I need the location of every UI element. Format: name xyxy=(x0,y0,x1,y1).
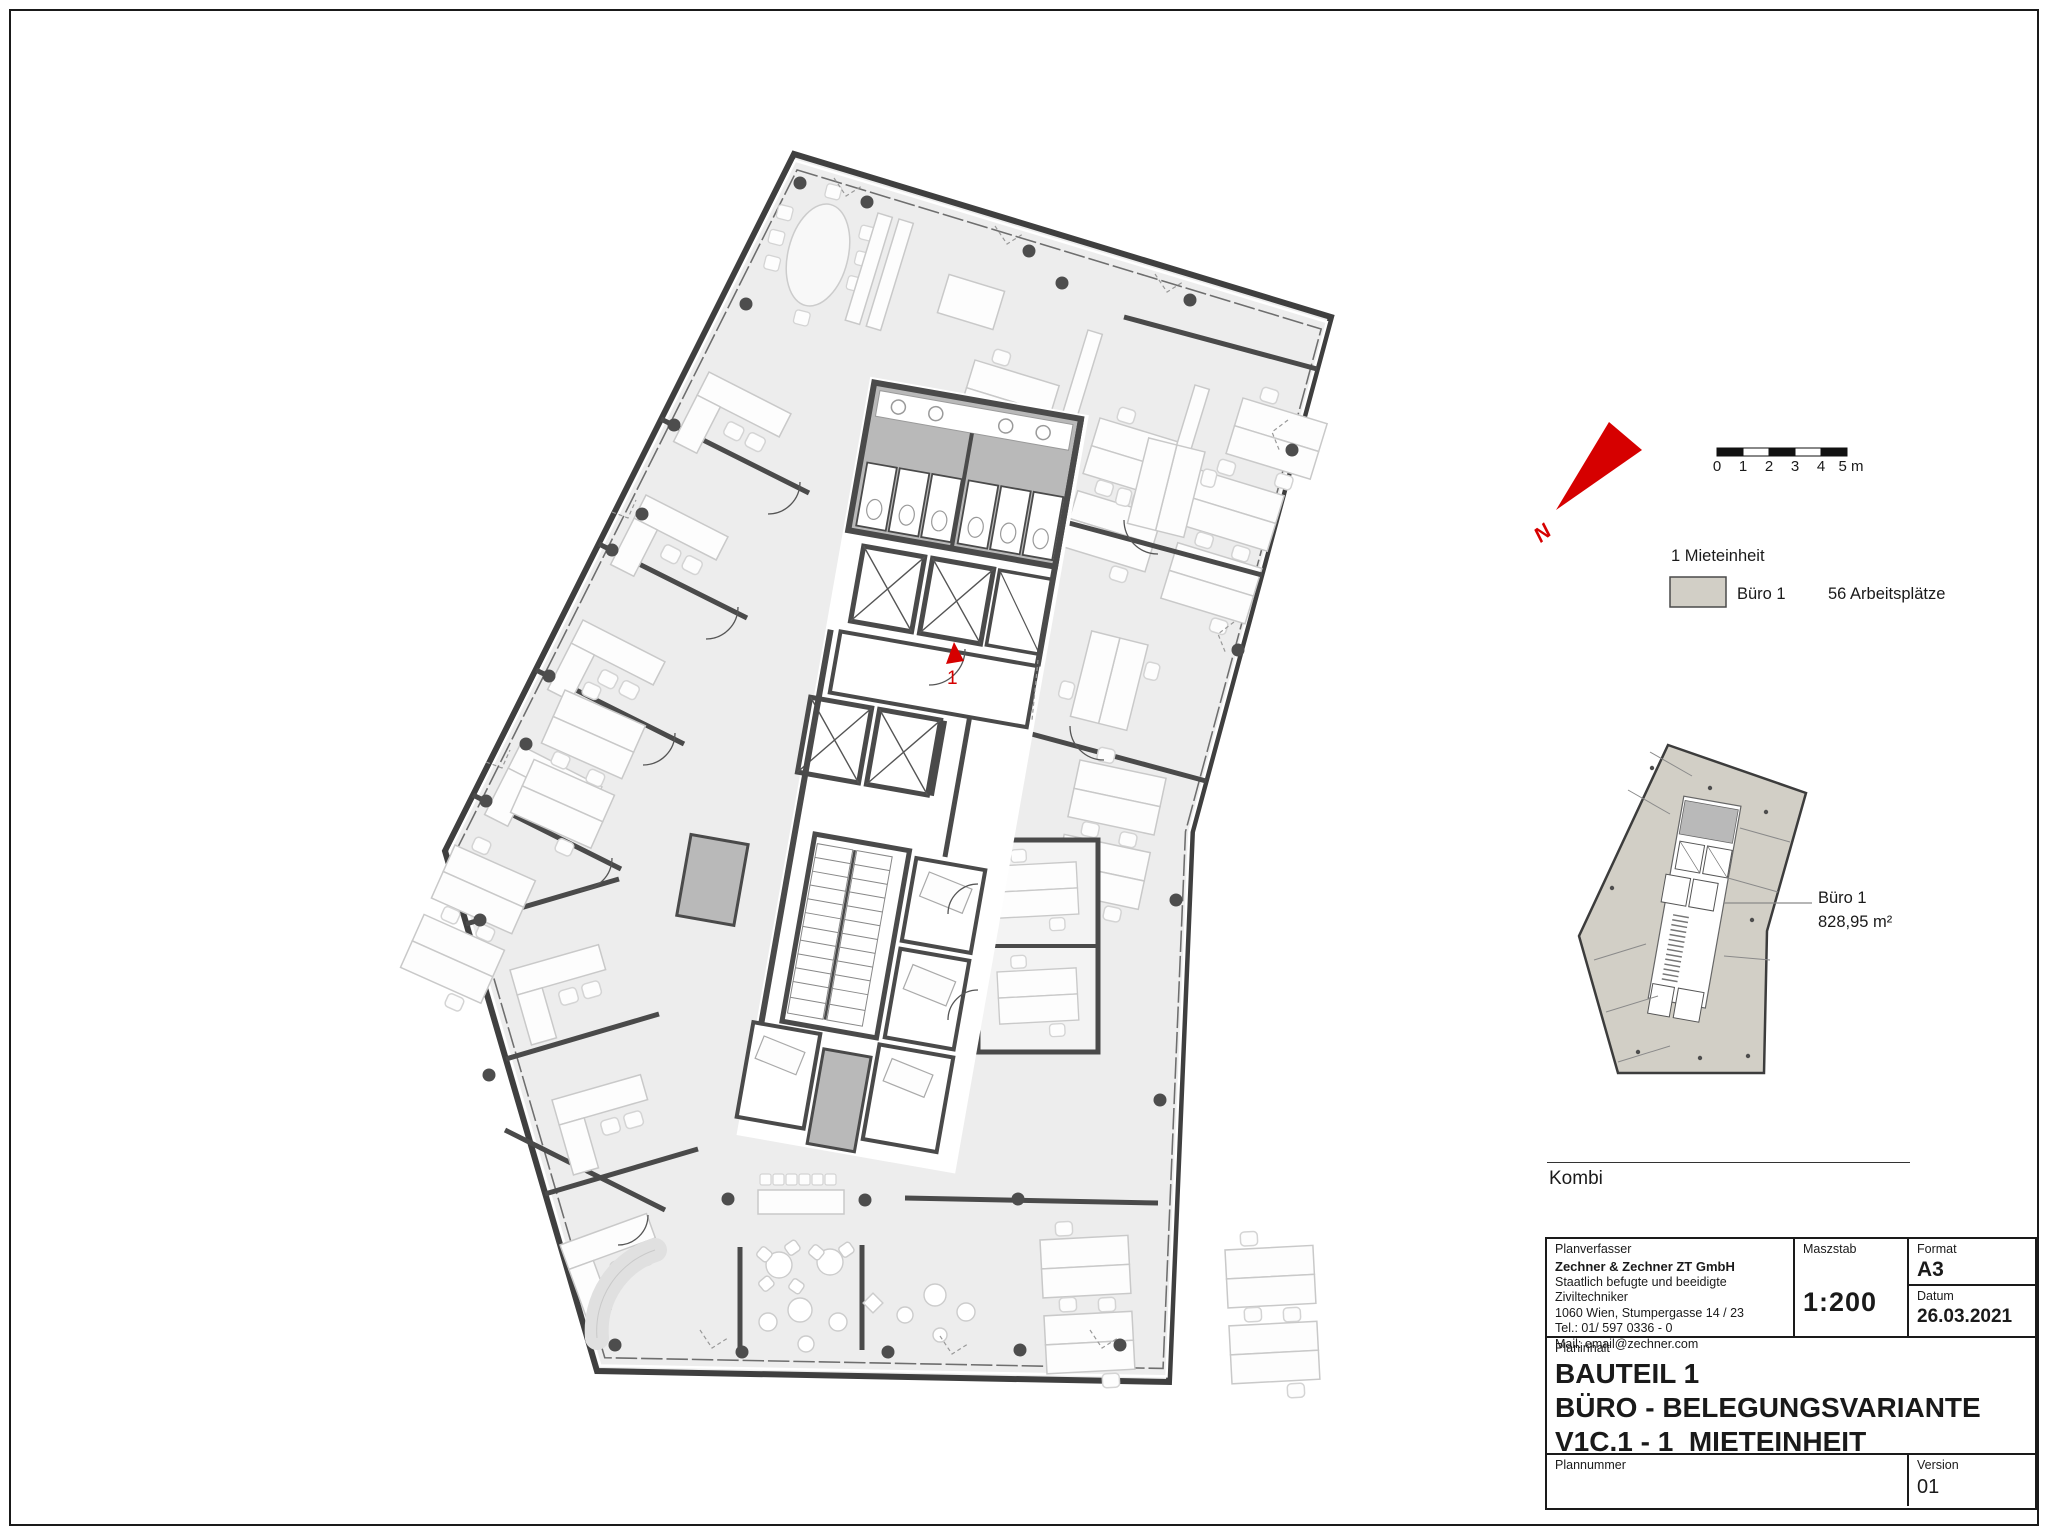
scale-tick-0: 0 xyxy=(1713,458,1721,475)
format-value: A3 xyxy=(1917,1258,2027,1282)
plan-title-line1: BAUTEIL 1 xyxy=(1555,1358,2027,1390)
legend-unit-label: Büro 1 xyxy=(1737,585,1786,603)
format-label: Format xyxy=(1917,1242,2027,1257)
north-arrow-icon xyxy=(1556,422,1642,510)
wc-area xyxy=(848,383,1081,567)
maszstab-label: Maszstab xyxy=(1803,1242,1899,1257)
company-phone: Tel.: 01/ 597 0336 - 0 xyxy=(1555,1321,1785,1337)
scale-tick-4: 4 xyxy=(1817,458,1825,475)
plannummer-cell: Plannummer xyxy=(1547,1455,1909,1506)
scale-bar: 0 1 2 3 4 5 m xyxy=(1713,448,1864,475)
section-label: Kombi xyxy=(1549,1168,1603,1190)
company-name: Zechner & Zechner ZT GmbH xyxy=(1555,1259,1785,1275)
maszstab-value: 1:200 xyxy=(1803,1287,1899,1318)
overview-room-label: Büro 1 xyxy=(1818,889,1867,907)
legend: 1 Mieteinheit Büro 1 56 Arbeitsplätze xyxy=(1670,547,1945,607)
scale-tick-2: 2 xyxy=(1765,458,1773,475)
scale-tick-5: 5 m xyxy=(1838,458,1863,475)
plan-sheet: 1 N 0 1 2 3 4 5 m xyxy=(0,0,2048,1535)
company-subtitle: Staatlich befugte und beeidigte Ziviltec… xyxy=(1555,1275,1785,1306)
north-arrow: N xyxy=(1530,422,1642,547)
overview-plan: Büro 1 828,95 m² xyxy=(1579,745,1893,1073)
format-cell: Format A3 xyxy=(1909,1239,2035,1286)
version-cell: Version 01 xyxy=(1909,1455,2035,1506)
company-address: 1060 Wien, Stumpergasse 14 / 23 xyxy=(1555,1306,1785,1322)
datum-value: 26.03.2021 xyxy=(1917,1306,2027,1328)
entrance-marker-label: 1 xyxy=(947,668,958,689)
section-divider-line xyxy=(1547,1162,1910,1163)
legend-title: 1 Mieteinheit xyxy=(1671,547,1765,565)
service-room xyxy=(677,835,748,926)
planverfasser-cell: Planverfasser Zechner & Zechner ZT GmbH … xyxy=(1547,1239,1795,1336)
plan-title-line2: BÜRO - BELEGUNGSVARIANTE xyxy=(1555,1392,2027,1424)
datum-cell: Datum 26.03.2021 xyxy=(1909,1286,2035,1336)
maszstab-cell: Maszstab 1:200 xyxy=(1795,1239,1909,1336)
plan-title-line3: V1C.1 - 1 MIETEINHEIT xyxy=(1555,1426,2027,1458)
title-block: Planverfasser Zechner & Zechner ZT GmbH … xyxy=(1545,1237,2037,1510)
version-label: Version xyxy=(1917,1458,2027,1473)
main-floor-plan: 1 xyxy=(394,154,1333,1401)
overview-area-label: 828,95 m² xyxy=(1818,913,1893,931)
legend-swatch xyxy=(1670,577,1726,607)
scale-tick-1: 1 xyxy=(1739,458,1747,475)
legend-workplaces: 56 Arbeitsplätze xyxy=(1828,585,1945,603)
planverfasser-label: Planverfasser xyxy=(1555,1242,1785,1257)
plannummer-label: Plannummer xyxy=(1555,1458,1899,1473)
datum-label: Datum xyxy=(1917,1289,2027,1304)
planinhalt-cell: Planinhalt BAUTEIL 1 BÜRO - BELEGUNGSVAR… xyxy=(1547,1338,2035,1455)
version-value: 01 xyxy=(1917,1476,2027,1499)
scale-tick-3: 3 xyxy=(1791,458,1799,475)
north-label: N xyxy=(1530,519,1557,547)
